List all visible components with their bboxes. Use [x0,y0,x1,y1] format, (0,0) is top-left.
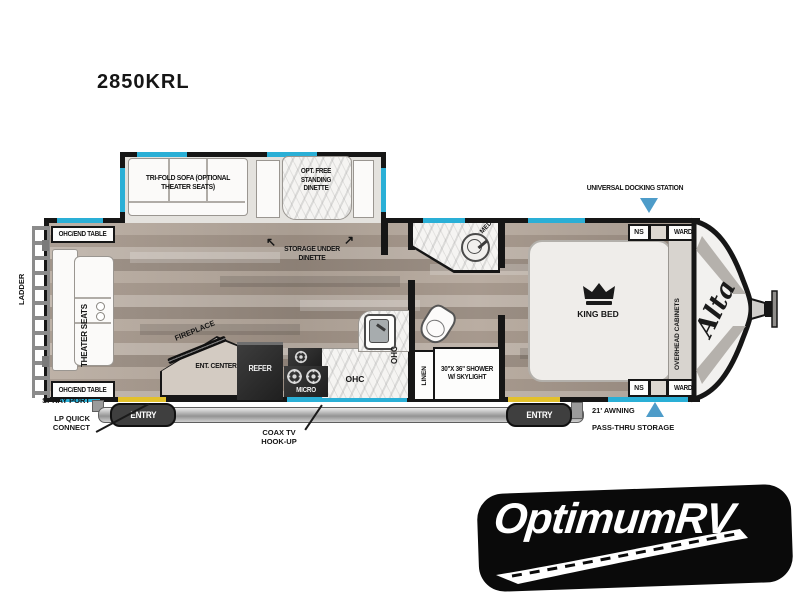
pass-thru-label: PASS-THRU STORAGE [592,423,674,432]
front-cap: Alta [686,203,786,415]
window-bath-top [423,218,465,223]
ladder-bracket [42,356,49,367]
slide-window-left [120,168,125,212]
nightstand-bottom: NS [628,379,650,397]
pass-thru-arrow-icon [646,402,664,417]
ladder-label: LADDER [17,243,26,305]
entry-door-front-swing [508,397,560,402]
ladder-icon [32,226,50,398]
dealer-logo: OptimumRV [478,489,792,589]
burner-icon [286,368,303,385]
ohc-end-table-top: OHC/END TABLE [51,226,115,243]
hitch-coupler [751,299,765,319]
slide-end-wall-stub [381,223,388,255]
ent-center-label: ENT. CENTER [192,362,240,371]
cupholder-icon [96,302,105,311]
hitch-bar [772,291,777,327]
kitchen-ohc-label: OHC [338,375,372,384]
tri-fold-sofa-label: TRI-FOLD SOFA (OPTIONAL THEATER SEATS) [130,174,246,191]
storage-under-dinette-label: STORAGE UNDER DINETTE [279,245,345,262]
hitch-jack [765,301,772,317]
linen-cabinet: LINEN [413,350,435,401]
dinette-bench-right [353,160,374,218]
slide-window-top-1 [137,152,187,157]
floor-plank [130,252,280,263]
coax-label: COAX TV HOOK-UP [252,428,306,446]
micro-label: MICRO [284,387,328,394]
king-bed-label: KING BED [558,310,638,319]
floor-plank [220,276,400,287]
cupholder-icon [96,312,105,321]
dinette-label: OPT. FREE STANDING DINETTE [286,168,346,194]
model-title: 2850KRL [97,71,190,94]
ladder-bracket [42,240,49,251]
awning-bracket-right [571,402,583,419]
crown-icon [581,281,617,307]
kitchen-ohc-side-label: OHC [390,336,399,364]
spray-port-label: SPRAY PORT [26,396,90,405]
sofa-seat-line [129,201,245,203]
cabinet-top [649,224,668,241]
slide-window-right [381,168,386,212]
docking-station-arrow-icon [640,198,658,213]
nightstand-top: NS [628,224,650,241]
overhead-cabinets-label: OVERHEAD CABINETS [674,248,681,370]
entry-door-rear-swing [118,397,166,402]
burner-icon [305,368,322,385]
docking-station-label: UNIVERSAL DOCKING STATION [573,183,697,192]
window-rear-top [57,218,103,223]
dealer-logo-text: OptimumRV [491,495,788,544]
floorplan-page: 2850KRL TRI-FOLD SOFA (OPTIONAL THEATER … [0,0,800,600]
storage-arrow-right-icon: ↗ [344,233,354,247]
cabinet-bottom [649,379,668,397]
storage-arrow-left-icon: ↖ [266,235,276,249]
shower: 30"X 36" SHOWER W/ SKYLIGHT [433,347,501,401]
kitchen-sink-basin [369,319,389,343]
lp-quick-connect-label: LP QUICK CONNECT [40,414,90,432]
theater-seats-label: THEATER SEATS [80,272,89,367]
awning-length-label: 21' AWNING [592,406,635,415]
burner-icon [294,350,308,364]
dinette-bench-left [256,160,280,218]
refer-label: REFER [237,364,283,373]
window-bedroom-top [528,218,585,223]
entry-badge-front: ENTRY [506,403,572,427]
